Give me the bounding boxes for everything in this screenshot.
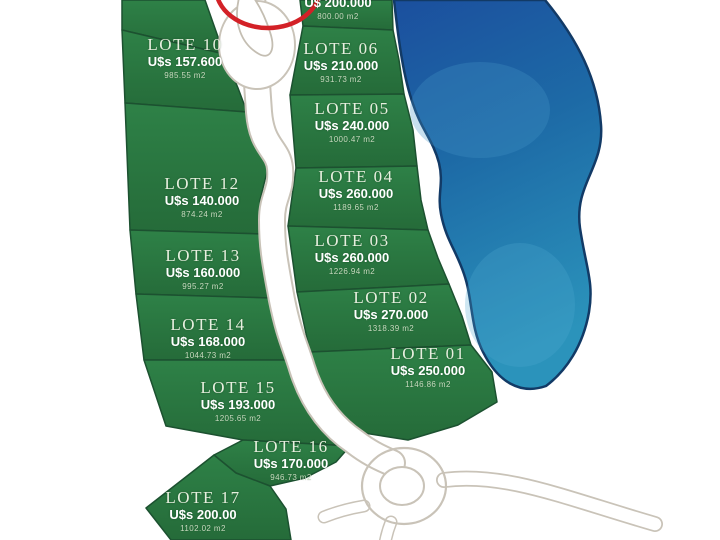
lot-map: U$ 200.000 800.00 m2 LOTE 06 U$s 210.000…	[0, 0, 720, 540]
lot-region-lote-03	[288, 226, 449, 292]
lake-light-patch-lower	[465, 243, 575, 367]
exit-road-left-surface	[324, 506, 364, 517]
lot-region-lote-02	[297, 284, 471, 352]
lot-region-lote-14	[136, 294, 290, 360]
roundabout-exit-roads	[324, 479, 655, 540]
lot-region-lote-06	[290, 26, 404, 95]
lot-region-lote-05	[290, 94, 417, 168]
exit-road-bottom-surface	[384, 522, 391, 540]
lake-light-patch-upper	[410, 62, 550, 158]
lot-map-canvas	[0, 0, 720, 540]
roundabout-island	[380, 467, 424, 505]
lot-region-lote-13	[130, 230, 271, 298]
lot-region-lote-04	[288, 166, 428, 230]
